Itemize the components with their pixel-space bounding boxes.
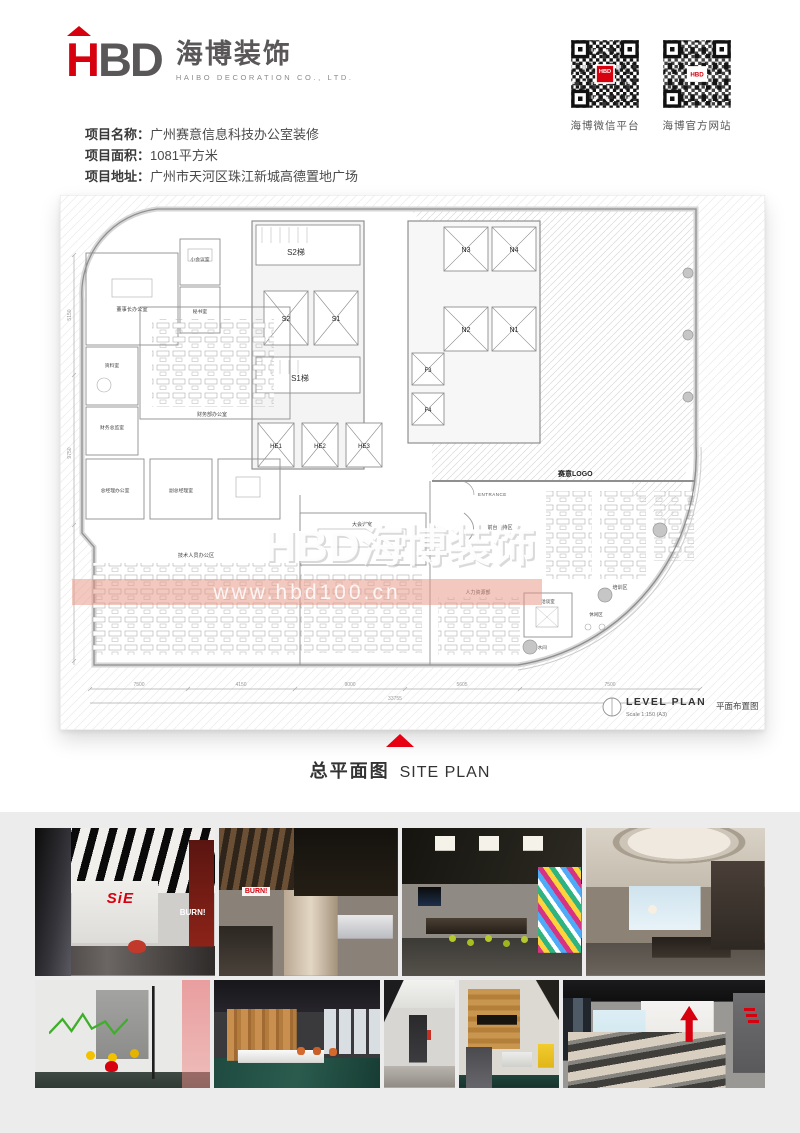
red-arrow-graphic [680, 1006, 698, 1042]
elevator-f4-label: F4 [424, 408, 432, 414]
dim-2: 4150 [235, 682, 246, 688]
green-zigzag-graphic [49, 1012, 128, 1036]
project-name-value: 广州赛意信息科技办公室装修 [150, 127, 319, 142]
room-tech-label: 技术人员办公区 [178, 551, 214, 559]
dim-total: 33755 [388, 696, 402, 702]
project-info: 项目名称：广州赛意信息科技办公室装修 项目面积：1081平方米 项目地址：广州市… [85, 124, 358, 187]
elevator-he2-label: HE2 [314, 444, 326, 450]
tenant-logo-label: 赛意LOGO [557, 469, 593, 478]
gallery-photo-executive-office [586, 828, 766, 976]
stair-s1-label: S1梯 [291, 373, 309, 383]
orange-stools-shape [297, 1047, 305, 1055]
gallery-photo-open-office-corridor: BURN! [219, 828, 399, 976]
qr-website-image: HBD [661, 38, 733, 110]
logo-chinese-name: 海博装饰 [176, 40, 354, 70]
logo-letters-bd: BD [98, 33, 162, 86]
render-gallery: SiE BURN! BURN! [0, 812, 800, 1133]
room-vgm-label: 副总经理室 [169, 487, 193, 494]
meeting-chairs-shape [449, 935, 456, 942]
room-training-label: 培训区 [612, 584, 627, 591]
titleblock-title: LEVEL PLAN [626, 696, 706, 708]
elevator-n1-label: N1 [510, 327, 519, 334]
yellow-chairs-shape [86, 1051, 95, 1060]
gallery-photo-corridor [384, 980, 455, 1088]
elevator-he1-label: HE1 [270, 444, 282, 450]
gallery-photo-pantry-bar [214, 980, 380, 1088]
gallery-photo-reception-lobby: SiE BURN! [35, 828, 215, 976]
caption-english: SITE PLAN [400, 764, 491, 781]
hr-desks [438, 597, 520, 655]
red-accent-shape [427, 1030, 431, 1040]
watermark-main-text: HBD海博装饰 [264, 522, 535, 571]
elevator-n4-label: N4 [510, 247, 519, 254]
project-address-value: 广州市天河区珠江新城高德置地广场 [150, 169, 358, 184]
project-area-row: 项目面积：1081平方米 [85, 145, 358, 166]
poster-page: HBD 海博装饰 HAIBO DECORATION CO., LTD. [0, 0, 800, 1133]
project-name-row: 项目名称：广州赛意信息科技办公室装修 [85, 124, 358, 145]
burn-sign-text-2: BURN! [242, 887, 271, 896]
hbd-logo-mark: HBD [66, 36, 162, 83]
room-gm-label: 总经理办公室 [101, 487, 130, 494]
gallery-grid: SiE BURN! BURN! [35, 812, 765, 1088]
elevator-he3-label: HE3 [358, 444, 370, 450]
qr-code-group: HBD 海博微信平台 HBD 海博官方网站 [568, 38, 734, 133]
titleblock-scale: Scale 1:150 (A3) [626, 712, 667, 718]
site-plan-sheet: S2梯 S1梯 S2 S1 HE1 HE2 HE3 [60, 195, 765, 730]
qr-wechat-label: 海博微信平台 [568, 118, 642, 133]
logo-wordmark: 海博装饰 HAIBO DECORATION CO., LTD. [176, 36, 354, 82]
room-cfo-label: 财务总监室 [100, 424, 124, 431]
red-chair-shape [128, 940, 146, 953]
logo-letter-h: H [66, 33, 98, 86]
logo-english-name: HAIBO DECORATION CO., LTD. [176, 73, 354, 82]
titleblock-name-cn: 平面布置图 [716, 701, 759, 711]
room-small-meeting-label: 小会议室 [190, 256, 209, 263]
finance-desks [152, 319, 274, 407]
dim-3: 9000 [344, 682, 355, 688]
qr-wechat-image: HBD [569, 38, 641, 110]
room-archive-label: 资料室 [105, 362, 120, 369]
project-area-value: 1081平方米 [150, 148, 218, 163]
qr-website: HBD 海博官方网站 [660, 38, 734, 133]
floor-plan-drawing: S2梯 S1梯 S2 S1 HE1 HE2 HE3 [60, 195, 765, 730]
gallery-photo-huddle-room [35, 980, 210, 1088]
tech-desks [90, 563, 302, 655]
dim-4: 5605 [456, 682, 467, 688]
elevator-s2-label: S2 [282, 316, 291, 323]
project-address-label: 项目地址： [85, 169, 150, 184]
dim-v2: 9750 [67, 447, 73, 458]
qr-wechat-center-logo: HBD [599, 69, 611, 75]
floor-lamp-shape [648, 905, 657, 914]
sie-logo-text: SiE [107, 890, 134, 907]
hbd-logo: HBD 海博装饰 HAIBO DECORATION CO., LTD. [66, 36, 354, 83]
qr-website-label: 海博官方网站 [660, 118, 734, 133]
red-wall-logo-shape [744, 1008, 755, 1011]
gallery-row-2 [35, 980, 765, 1088]
elevator-n3-label: N3 [462, 247, 471, 254]
elevator-f3-label: F3 [424, 368, 432, 374]
red-triangle-icon [386, 734, 414, 747]
room-talk-label: 洽谈室 [541, 598, 555, 605]
gallery-row-1: SiE BURN! BURN! [35, 828, 765, 976]
project-name-label: 项目名称： [85, 127, 150, 142]
watermark-url-text: www.hbd100.cn [212, 581, 400, 604]
burn-sign-text-1: BURN! [180, 908, 206, 917]
room-secretary-label: 秘书室 [193, 308, 208, 315]
stair-s2-label: S2梯 [287, 247, 305, 257]
qr-wechat: HBD 海博微信平台 [568, 38, 642, 133]
gallery-photo-meeting-room [402, 828, 582, 976]
dim-v1: 5150 [67, 309, 73, 320]
project-area-label: 项目面积： [85, 148, 150, 163]
elevator-n2-label: N2 [462, 327, 471, 334]
plan-caption: 总平面图SITE PLAN [0, 734, 800, 783]
red-chair-shape-2 [105, 1061, 118, 1072]
elevator-s1-label: S1 [332, 316, 341, 323]
caption-chinese: 总平面图 [310, 761, 390, 781]
room-lounge-label: 休闲区 [589, 611, 603, 618]
gallery-photo-print-room [459, 980, 559, 1088]
entrance-label: ENTRANCE [478, 492, 507, 497]
gallery-photo-training-room [563, 980, 765, 1088]
room-chairman-label: 董事长办公室 [116, 305, 147, 313]
project-address-row: 项目地址：广州市天河区珠江新城高德置地广场 [85, 166, 358, 187]
room-finance-label: 财务部办公室 [197, 411, 227, 418]
dim-5: 7500 [604, 682, 615, 688]
dim-1: 7500 [133, 682, 144, 688]
qr-website-center-logo: HBD [690, 71, 704, 78]
